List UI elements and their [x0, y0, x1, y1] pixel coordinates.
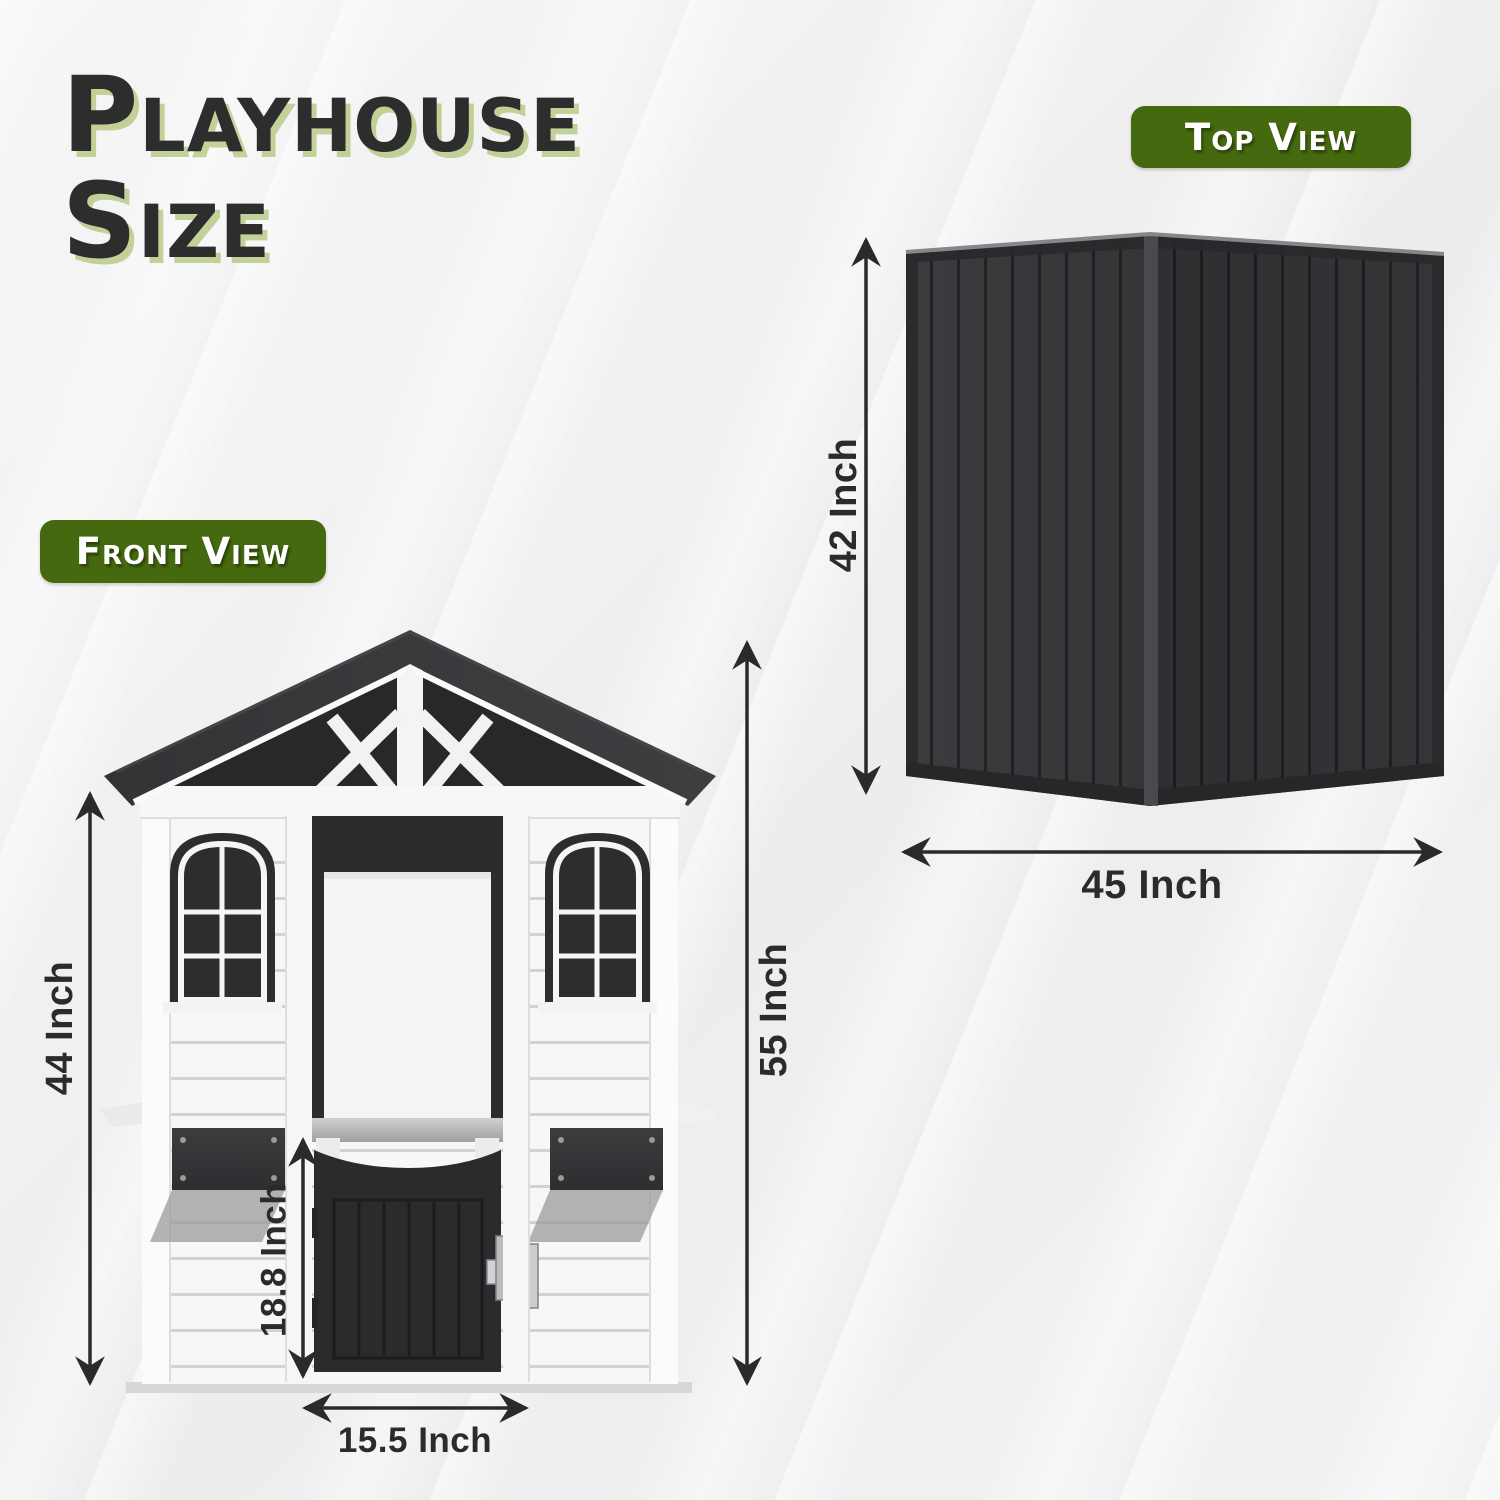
- left-corner-post: [142, 806, 170, 1384]
- door-height-label: 18.8 Inch: [254, 1183, 293, 1337]
- front-view-house: [100, 630, 720, 1393]
- left-shelf-bracket: [100, 1102, 142, 1127]
- right-shelf-bracket: [678, 1102, 720, 1127]
- depth-label: 42 Inch: [823, 438, 865, 572]
- door-width-label: 15.5 Inch: [338, 1421, 492, 1460]
- window-sill: [538, 1002, 657, 1013]
- window-sill: [163, 1002, 282, 1013]
- top-view-box: [906, 234, 1444, 806]
- right-window: [538, 833, 657, 1013]
- doorway-header: [312, 816, 503, 878]
- header-beam: [140, 786, 680, 818]
- left-window: [163, 833, 282, 1013]
- king-post: [397, 655, 423, 795]
- wall-height-label: 44 Inch: [39, 961, 81, 1095]
- right-corner-post: [650, 806, 678, 1384]
- dimension-diagram: 44 Inch 55 Inch 18.8 Inch 15.5 Inch 42 I…: [0, 0, 1500, 1500]
- top-view-corner-edge: [1144, 234, 1158, 806]
- center-doorway: [285, 816, 538, 1384]
- door-counter: [312, 1118, 503, 1142]
- door-post-right: [503, 816, 530, 1384]
- overall-height-label: 55 Inch: [753, 943, 795, 1077]
- width-label: 45 Inch: [1081, 863, 1222, 907]
